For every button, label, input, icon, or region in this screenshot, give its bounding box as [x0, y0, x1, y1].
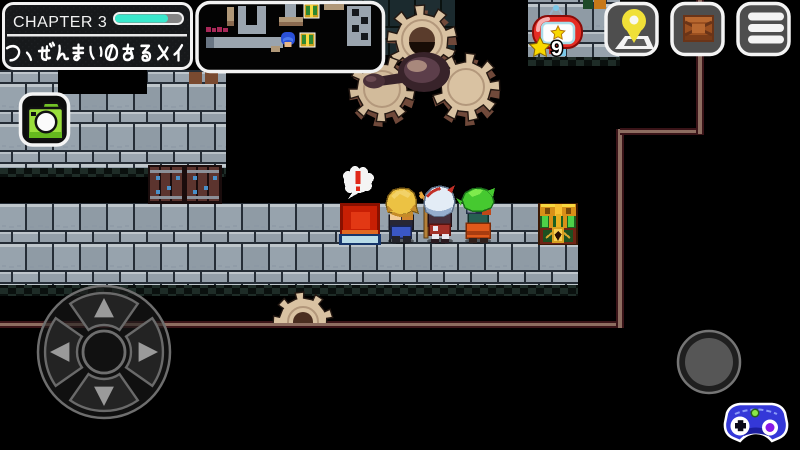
svg-text:9: 9 — [551, 38, 563, 61]
svg-text:CHAPTER 3: CHAPTER 3 — [13, 14, 107, 31]
